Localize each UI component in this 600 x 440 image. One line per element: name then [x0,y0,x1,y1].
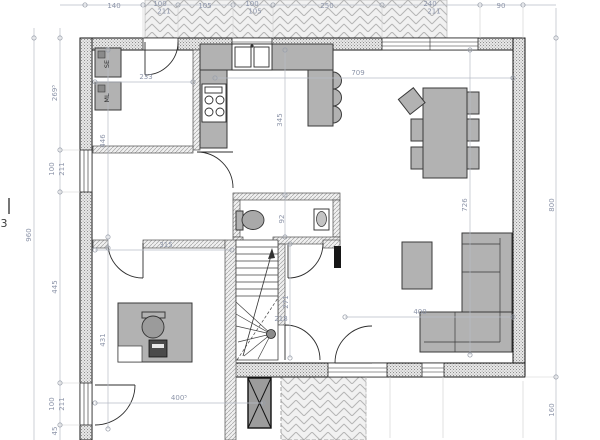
dimension-label: 211 [58,162,66,175]
wall-tv-poche [334,246,341,268]
dimension-label: 218 [274,315,287,323]
sofa-horizontal [420,312,512,352]
bar-stool [333,106,342,123]
kitchen [200,44,342,148]
bottom-window-large [328,363,387,377]
dimension-label: 250 [320,2,333,10]
office [118,303,192,362]
wall-utility-kitchen [193,50,200,150]
hall-door-swing [288,243,323,278]
garden-door-swing [95,385,135,425]
dimension-label: 92 [278,215,286,224]
annotation-label: 3 [1,217,8,230]
annotation-label: SE [103,60,111,68]
patio-bottom-hatch [281,377,366,440]
bar-stool [333,89,342,106]
patio-top-hatch [145,0,447,38]
office-chair [142,316,164,338]
dimension-label: 960 [25,228,33,241]
wall-stair-east [278,244,285,325]
office-door-swing [108,243,143,278]
dimension-label: 709 [351,69,364,77]
wall-office-north-b [143,240,225,248]
staircase [236,240,278,360]
dimension-label: 400 [413,308,426,316]
dimension-label: 800 [548,198,556,211]
dimension-label: 345 [276,113,284,126]
dimension-label: 45 [51,427,59,436]
kitchen-door-swing [197,152,233,188]
floor-plan-canvas: 14010021110510010525024021190960269⁵1002… [0,0,600,440]
kitchen-peninsula [308,70,333,126]
annotation-label: ML [103,93,111,103]
dimension-label: 105 [248,8,261,16]
dimension-label: 100 [48,397,56,410]
dining-chair [411,119,423,141]
bottom-window-small [422,363,444,377]
dining-chair [467,147,479,169]
dining-chair [467,92,479,114]
dimension-label: 140 [107,2,120,10]
dimension-label: 90 [497,2,506,10]
dimension-label: 160 [548,403,556,416]
dimension-label: 100 [48,162,56,175]
entrance-door-opening [143,38,178,50]
wall-left [80,38,92,440]
dimension-label: 105 [198,2,211,10]
dimension-label: 233 [139,73,152,81]
wall-wc-east [333,200,340,237]
dimension-label: 271 [282,295,290,308]
dining-set [398,88,479,178]
dining-chair-pulled-out [398,88,425,115]
dining-chair [411,147,423,169]
office-printer [149,340,167,357]
coffee-table [402,242,432,289]
stair-newel-post [267,330,276,339]
dimension-label: 211 [157,8,170,16]
bar-stool [333,72,342,89]
dimension-label: 269⁵ [51,85,59,101]
dimension-label: 211 [427,8,440,16]
toilet-bowl [242,211,264,230]
wall-office-north-a [93,240,108,248]
floor-plan-drawing: 14010021110510010525024021190960269⁵1002… [0,0,600,440]
dimension-label: 315 [159,241,172,249]
dimension-label: 446 [99,134,107,148]
dimension-label: 726 [461,198,469,212]
terrace-door-swing [335,326,372,363]
dimension-label: 445 [51,280,59,293]
wall-stair-west [225,240,236,440]
left-upper-window [80,150,92,192]
dining-chair [467,119,479,141]
dimension-label: 431 [99,333,107,346]
dimension-label: 211 [58,397,66,410]
wall-right [513,38,525,377]
living-room [402,233,512,352]
dimension-label: 400⁵ [171,394,187,402]
left-lower-window-door [80,383,92,425]
dining-table [423,88,467,178]
